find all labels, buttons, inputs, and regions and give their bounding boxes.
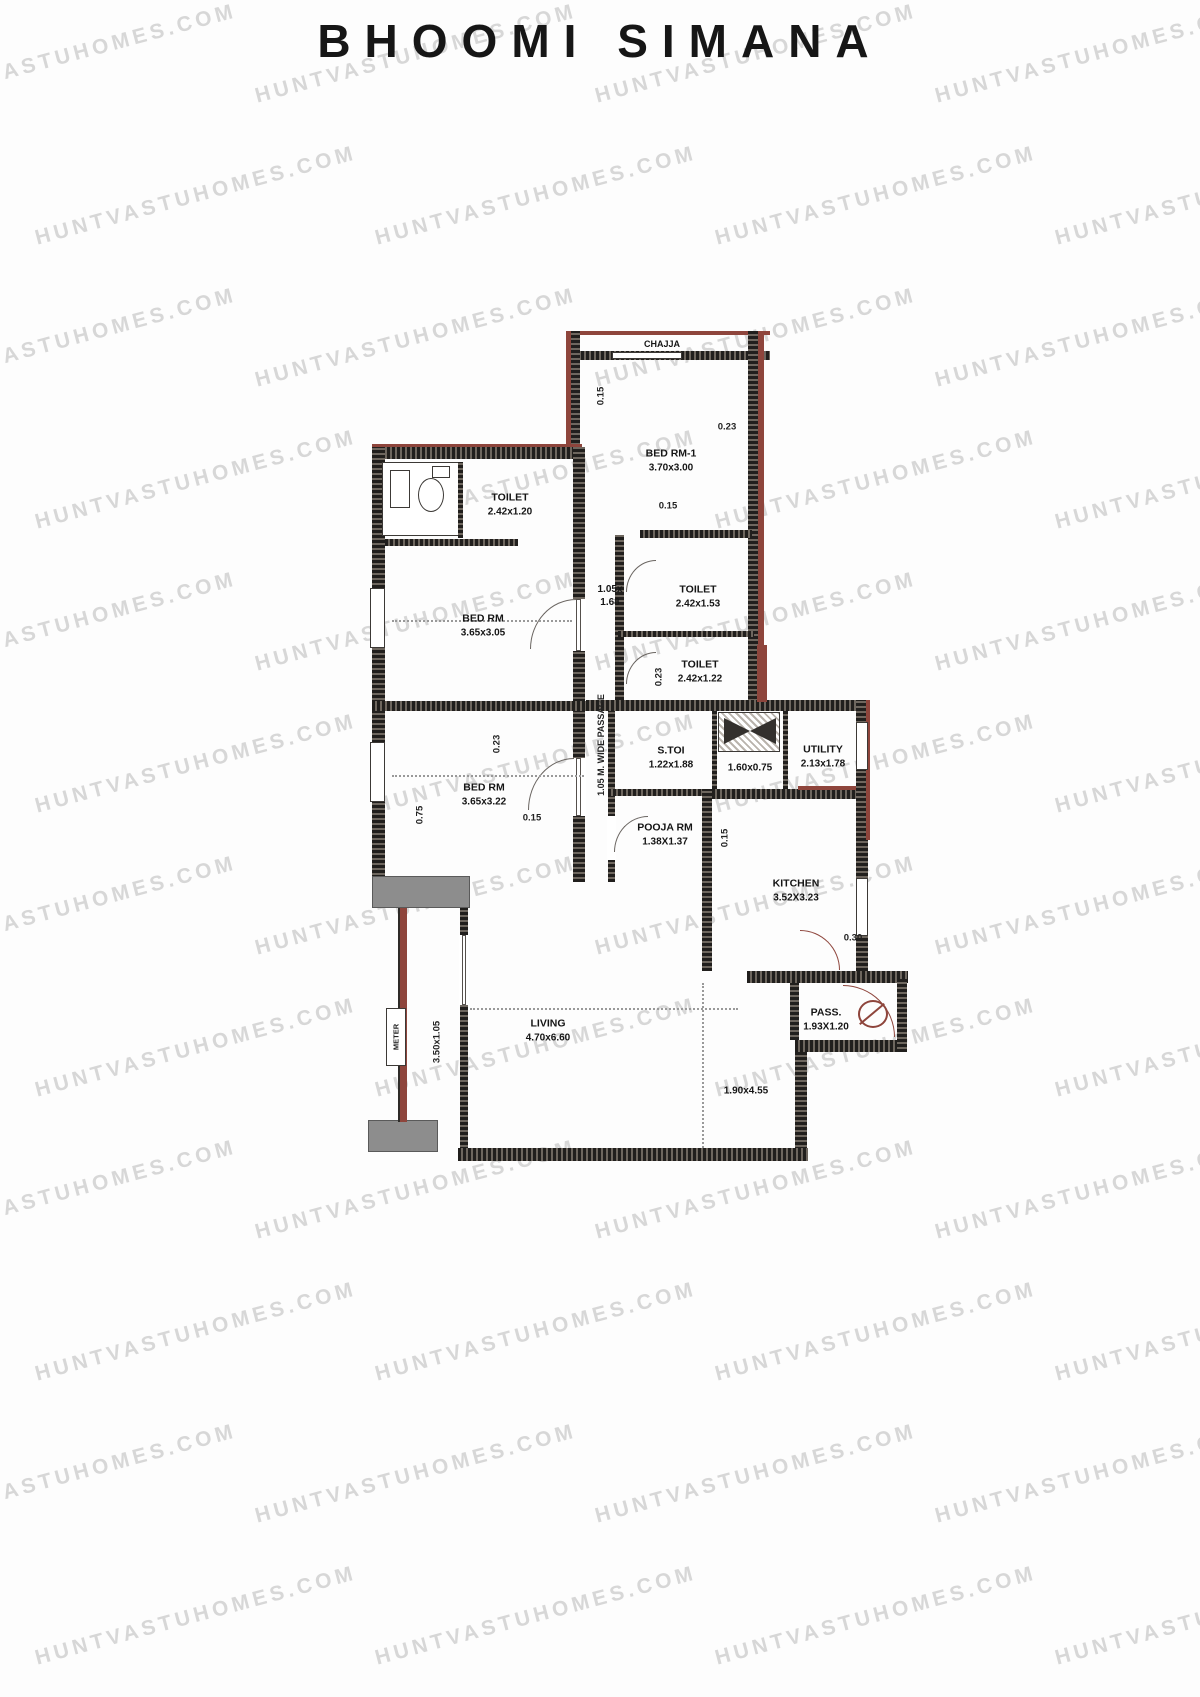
- room-name: BED RM: [461, 613, 506, 627]
- room-name: LIVING: [526, 1018, 571, 1032]
- room-dim: 4.70x6.60: [526, 1031, 571, 1044]
- wall: [571, 331, 580, 453]
- door-arc: [530, 599, 576, 649]
- room-dim: 1.60x0.75: [728, 762, 773, 775]
- concrete-block: [368, 1120, 438, 1152]
- label-passage: 1.05 M. WIDE PASSAGE: [596, 694, 606, 796]
- label-meter: METER: [392, 1024, 401, 1050]
- room-name: BED RM: [462, 782, 507, 796]
- dim-annotation: 0.23: [654, 668, 665, 687]
- fan-icon: [724, 718, 750, 744]
- wall: [372, 447, 582, 459]
- wall: [795, 1052, 807, 1150]
- room-dim: 3.70x3.00: [646, 461, 697, 474]
- wall: [757, 645, 767, 702]
- dim-annotation: 0.15: [596, 387, 607, 406]
- window: [370, 742, 385, 802]
- wall: [790, 983, 799, 1040]
- room-name: KITCHEN: [773, 878, 820, 892]
- dim-annotation: 0.30: [844, 933, 863, 944]
- door-gap: [607, 816, 616, 860]
- wall: [385, 539, 518, 546]
- room-name: TOILET: [678, 659, 723, 673]
- concrete-block: [372, 876, 470, 908]
- dim-line: [392, 775, 584, 777]
- label-s-toi: S.TOI 1.22x1.88: [649, 745, 694, 772]
- wall: [712, 789, 868, 799]
- label-toilet-2: TOILET 2.42x1.53: [676, 584, 721, 611]
- wall: [618, 631, 754, 637]
- dim-annotation: 0.15: [659, 501, 678, 512]
- label-living: LIVING 4.70x6.60: [526, 1018, 571, 1045]
- label-balcony-dim: 3.50x1.05: [432, 1021, 443, 1063]
- wc-fixture: [432, 466, 450, 478]
- page-title: BHOOMI SIMANA: [0, 14, 1200, 68]
- room-name: S.TOI: [649, 745, 694, 759]
- wall: [372, 701, 588, 711]
- wc-fixture: [418, 478, 444, 512]
- wall: [702, 789, 712, 971]
- wall: [458, 1148, 808, 1161]
- door-arc: [626, 560, 656, 592]
- door-arc: [626, 652, 656, 684]
- wall: [712, 711, 717, 789]
- window: [856, 878, 868, 936]
- label-dining-dim: 1.90x4.55: [724, 1085, 769, 1098]
- dim-line: [470, 1008, 738, 1010]
- label-chajja: CHAJJA: [644, 339, 680, 351]
- label-pooja-rm: POOJA RM 1.38X1.37: [637, 822, 693, 849]
- room-dim: 2.42x1.20: [488, 505, 533, 518]
- label-utility: UTILITY 2.13x1.78: [801, 744, 846, 771]
- wall: [573, 447, 585, 882]
- wall: [640, 530, 752, 538]
- room-dim: 1.38X1.37: [637, 835, 693, 848]
- label-kitchen: KITCHEN 3.52X3.23: [773, 878, 820, 905]
- room-name: POOJA RM: [637, 822, 693, 836]
- wall: [897, 979, 907, 1052]
- dim-annotation: 0.23: [718, 422, 737, 433]
- dim-annotation: 0.23: [492, 735, 503, 754]
- room-dim: 3.65x3.05: [461, 626, 506, 639]
- label-duct-dim: 1.05x 1.68: [597, 583, 622, 609]
- window: [370, 588, 385, 648]
- label-bed-rm-3: BED RM 3.65x3.22: [462, 782, 507, 809]
- room-dim: 3.52X3.23: [773, 891, 820, 904]
- label-bed-rm-2: BED RM 3.65x3.05: [461, 613, 506, 640]
- door-leaf: [576, 758, 581, 816]
- wall: [795, 1040, 907, 1052]
- balcony-door-leaf: [462, 935, 466, 1005]
- room-name: UTILITY: [801, 744, 846, 758]
- fan-icon: [750, 718, 776, 744]
- wall: [586, 700, 868, 711]
- label-wm-dim: 1.60x0.75: [728, 762, 773, 775]
- dim-annotation: 0.15: [720, 829, 731, 848]
- door-arc: [528, 758, 574, 810]
- room-name: PASS.: [803, 1007, 849, 1021]
- room-dim: 1.93X1.20: [803, 1020, 849, 1033]
- dim-annotation: 0.75: [415, 806, 426, 825]
- wall: [608, 789, 712, 796]
- window: [856, 722, 868, 770]
- door-leaf: [576, 599, 581, 651]
- wall: [783, 711, 788, 789]
- wall: [566, 331, 770, 335]
- room-name: TOILET: [676, 584, 721, 598]
- room-dim: 2.42x1.53: [676, 597, 721, 610]
- wc-fixture: [390, 470, 410, 508]
- label-toilet-3: TOILET 2.42x1.22: [678, 659, 723, 686]
- room-dim: 1.22x1.88: [649, 758, 694, 771]
- label-pass: PASS. 1.93X1.20: [803, 1007, 849, 1034]
- kitchen-door-arc: [800, 930, 840, 970]
- label-toilet-1: TOILET 2.42x1.20: [488, 492, 533, 519]
- room-dim: 2.13x1.78: [801, 757, 846, 770]
- room-dim: 3.65x3.22: [462, 795, 507, 808]
- window: [612, 352, 682, 359]
- dim-annotation: 0.15: [523, 813, 542, 824]
- wall: [615, 535, 624, 700]
- dim-line: [702, 983, 704, 1148]
- label-bed-rm-1: BED RM-1 3.70x3.00: [646, 448, 697, 475]
- wall: [458, 462, 463, 538]
- room-name: BED RM-1: [646, 448, 697, 462]
- wall: [747, 971, 908, 983]
- room-dim: 2.42x1.22: [678, 672, 723, 685]
- wall: [866, 700, 870, 840]
- door-symbol-icon: [858, 1000, 888, 1028]
- room-name: TOILET: [488, 492, 533, 506]
- floor-plan: CHAJJA BED RM-1 3.70x3.00 TOILET 2.42x1.…: [0, 0, 1200, 1697]
